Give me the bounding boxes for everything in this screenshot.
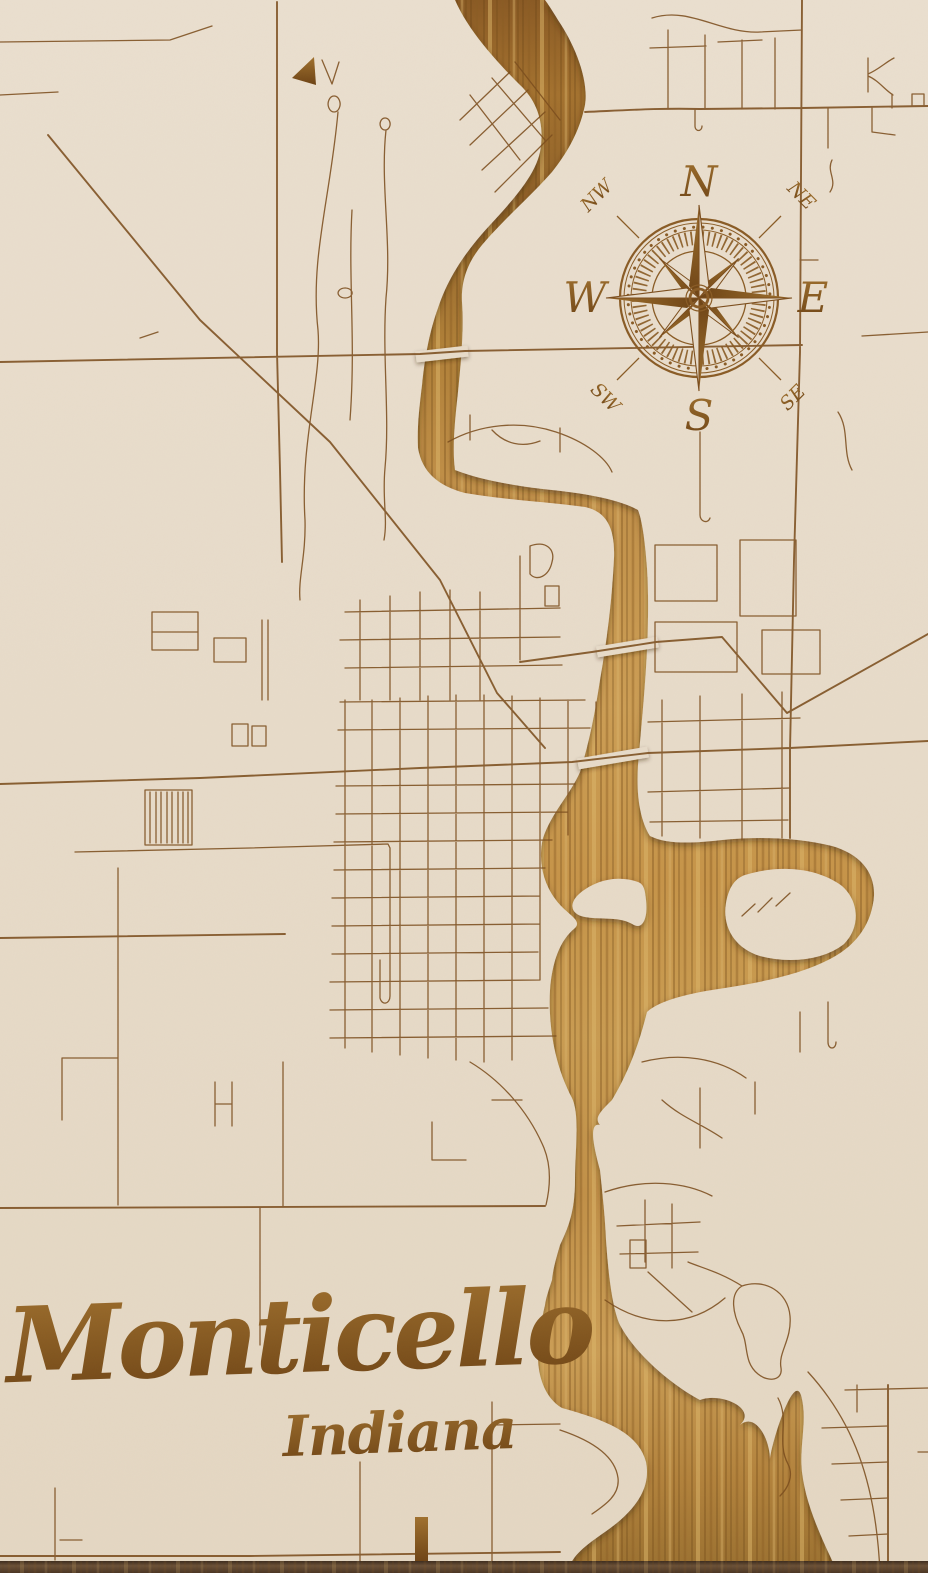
wood-map: N S E W NW NE SW SE Monticello Indiana <box>0 0 928 1573</box>
texture-overlay <box>0 0 928 1573</box>
map-canvas: N S E W NW NE SW SE Monticello Indiana <box>0 0 928 1573</box>
